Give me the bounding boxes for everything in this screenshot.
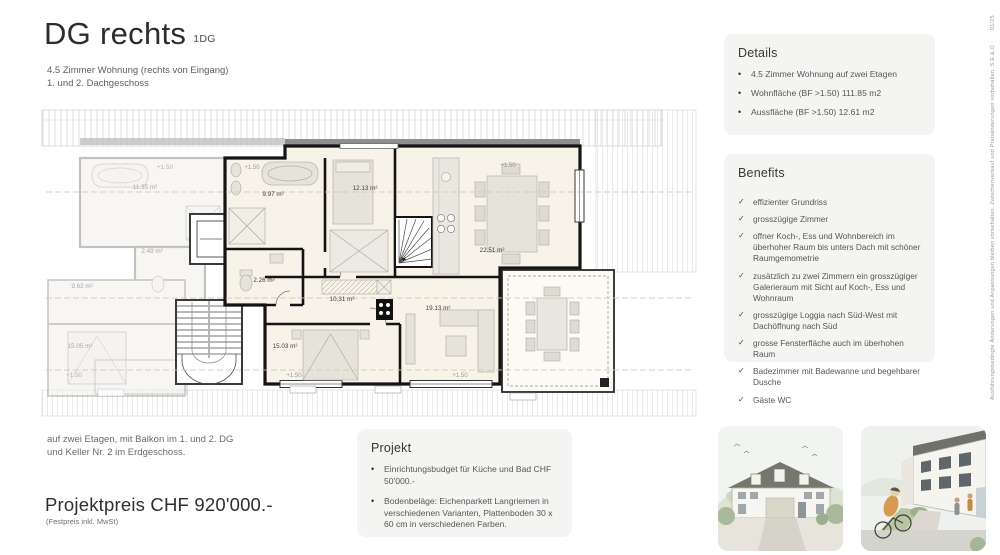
disclaimer-text: Ausführungsbedingte Änderungen und Anpas…: [990, 45, 996, 400]
benefits-panel: Benefits ✓ effizienter Grundriss ✓ gross…: [724, 154, 935, 362]
page-title-suffix: 1DG: [193, 33, 216, 45]
glass-door: [976, 487, 986, 518]
check-icon: ✓: [738, 214, 746, 225]
note-line-1: auf zwei Etagen, mit Balkon im 1. und 2.…: [47, 433, 233, 446]
brochure-page: DG rechts1DG 4.5 Zimmer Wohnung (rechts …: [0, 0, 1000, 555]
room-label-corridor: 10.31 m²: [330, 296, 355, 303]
benefits-item-text: zusätzlich zu zwei Zimmern ein grosszügi…: [753, 271, 927, 304]
coffee-table: [446, 336, 466, 356]
note-line-2: und Keller Nr. 2 im Erdgeschoss.: [47, 446, 233, 459]
projekt-list: • Einrichtungsbudget für Küche und Bad C…: [371, 464, 558, 531]
details-item: • Wohnfläche (BF >1.50) 111.85 m2: [738, 88, 927, 100]
room-label-bath: 9.97 m²: [262, 191, 283, 198]
projekt-item: • Einrichtungsbudget für Küche und Bad C…: [371, 464, 558, 487]
sink-icon: [231, 181, 241, 195]
sofa-icon: [478, 310, 494, 372]
bullet-icon: •: [738, 69, 744, 81]
benefits-item: ✓ grosszügige Zimmer: [738, 214, 927, 225]
details-item-text: 4.5 Zimmer Wohnung auf zwei Etagen: [751, 69, 897, 81]
room-label-wc: 2.26 m²: [253, 277, 274, 284]
level-label: +1.50: [66, 372, 82, 379]
level-label: +1.50: [157, 164, 173, 171]
drain: [600, 378, 609, 387]
benefits-item: ✓ effizienter Grundriss: [738, 197, 927, 208]
projekt-title: Projekt: [371, 441, 558, 455]
details-item-text: Wohnfläche (BF >1.50) 111.85 m2: [751, 88, 881, 100]
benefits-item: ✓ zusätzlich zu zwei Zimmern ein grosszü…: [738, 271, 927, 304]
sideboard: [406, 314, 415, 364]
neighbor-room-label: 2.49 m²: [141, 248, 162, 255]
neighbor-room-label: 9.62 m²: [71, 283, 92, 290]
benefits-item: ✓ Gäste WC: [738, 395, 927, 406]
bullet-icon: •: [371, 464, 377, 487]
kitchen-sink: [442, 173, 451, 182]
level-label: +1.50: [286, 373, 302, 379]
floor-plan: 9.97 m² 12.13 m² 2.26 m² 22.51 m² 10.31 …: [40, 102, 700, 422]
price-note: (Festpreis inkl. MwSt): [46, 517, 118, 526]
benefits-item-text: Gäste WC: [753, 395, 791, 406]
details-item: • 4.5 Zimmer Wohnung auf zwei Etagen: [738, 69, 927, 81]
rendering-exterior-front: [718, 426, 843, 551]
benefits-list: ✓ effizienter Grundriss ✓ grosszügige Zi…: [738, 197, 927, 406]
dining-table: [487, 176, 537, 252]
benefits-item-text: effizienter Grundriss: [753, 197, 827, 208]
details-list: • 4.5 Zimmer Wohnung auf zwei Etagen • W…: [738, 69, 927, 119]
details-item: • Aussfläche (BF >1.50) 12.61 m2: [738, 107, 927, 119]
check-icon: ✓: [738, 310, 746, 332]
page-title-text: DG rechts: [44, 16, 186, 51]
benefits-item-text: grosse Fensterfläche auch im überhohen R…: [753, 338, 927, 360]
subtitle-line-2: 1. und 2. Dachgeschoss: [47, 77, 228, 90]
benefits-item-text: grosszügige Loggia nach Süd-West mit Dac…: [753, 310, 927, 332]
bathtub-icon: [262, 162, 318, 185]
room-label-kitchen: 22.51 m²: [480, 247, 505, 254]
project-price: Projektpreis CHF 920'000.-: [45, 494, 273, 516]
room-label-bedroom-top: 12.13 m²: [353, 185, 378, 192]
neighbor-room-label: 11.35 m²: [133, 184, 157, 191]
bed-icon: [303, 330, 358, 380]
check-icon: ✓: [738, 395, 746, 406]
benefits-item-text: grosszügige Zimmer: [753, 214, 828, 225]
sink-icon: [270, 254, 283, 263]
bullet-icon: •: [738, 88, 744, 100]
projekt-item-text: Einrichtungsbudget für Küche und Bad CHF…: [384, 464, 558, 487]
page-title: DG rechts1DG: [44, 16, 216, 52]
bullet-icon: •: [738, 107, 744, 119]
street: [861, 530, 986, 551]
benefits-item: ✓ Badezimmer mit Badewanne und begehbare…: [738, 366, 927, 388]
winder-staircase: [395, 217, 432, 267]
building-side: [901, 456, 913, 506]
projekt-panel: Projekt • Einrichtungsbudget für Küche u…: [357, 429, 572, 537]
benefits-item-text: Badezimmer mit Badewanne und begehbarer …: [753, 366, 927, 388]
toilet-icon: [152, 276, 164, 292]
neighbor-room-label: 15.05 m²: [68, 343, 93, 350]
room-label-bedroom-bottom: 15.03 m²: [273, 343, 298, 350]
level-label: +1.50: [452, 373, 468, 379]
outdoor-table: [537, 298, 567, 350]
details-title: Details: [738, 46, 927, 60]
projekt-item-text: Bodenbeläge: Eichenparkett Langriemen in…: [384, 496, 558, 531]
details-panel: Details • 4.5 Zimmer Wohnung auf zwei Et…: [724, 34, 935, 135]
subtitle-line-1: 4.5 Zimmer Wohnung (rechts von Eingang): [47, 64, 228, 77]
check-icon: ✓: [738, 366, 746, 388]
benefits-item: ✓ grosszügige Loggia nach Süd-West mit D…: [738, 310, 927, 332]
entry-door: [798, 502, 806, 518]
garage-door: [766, 498, 794, 518]
check-icon: ✓: [738, 197, 746, 208]
main-staircase: [176, 300, 242, 384]
room-label-living: 19.13 m²: [426, 305, 451, 312]
level-label: +1.50: [244, 165, 260, 171]
details-item-text: Aussfläche (BF >1.50) 12.61 m2: [751, 107, 874, 119]
loggia: [502, 270, 614, 392]
check-icon: ✓: [738, 231, 746, 264]
sink-icon: [231, 163, 241, 177]
rendering-street-view: [861, 426, 986, 551]
level-label: +1.50: [500, 163, 516, 169]
projekt-item: • Bodenbeläge: Eichenparkett Langriemen …: [371, 496, 558, 531]
toilet-icon: [240, 275, 252, 291]
check-icon: ✓: [738, 271, 746, 304]
version-code: 01/25: [990, 15, 996, 30]
page-subtitle: 4.5 Zimmer Wohnung (rechts von Eingang) …: [47, 64, 228, 90]
benefits-title: Benefits: [738, 166, 927, 180]
benefits-item: ✓ offner Koch-, Ess und Wohnbereich im ü…: [738, 231, 927, 264]
benefits-item: ✓ grosse Fensterfläche auch im überhohen…: [738, 338, 927, 360]
bullet-icon: •: [371, 496, 377, 531]
corridor-wardrobe: [322, 280, 377, 294]
check-icon: ✓: [738, 338, 746, 360]
benefits-item-text: offner Koch-, Ess und Wohnbereich im übe…: [753, 231, 927, 264]
shaft: [376, 299, 393, 320]
location-note: auf zwei Etagen, mit Balkon im 1. und 2.…: [47, 433, 233, 459]
